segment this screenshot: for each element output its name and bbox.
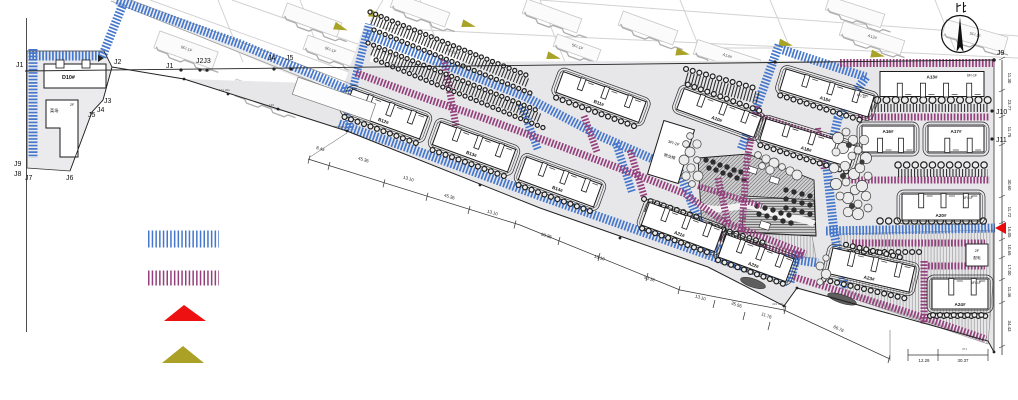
svg-text:139: 139 [269, 103, 274, 107]
svg-text:J5: J5 [286, 55, 294, 62]
svg-text:319 315: 319 315 [772, 302, 783, 306]
svg-text:J6: J6 [66, 175, 74, 182]
svg-text:16.05: 16.05 [1007, 227, 1012, 239]
svg-text:J9: J9 [997, 50, 1005, 57]
svg-text:A20#: A20# [936, 213, 947, 218]
svg-text:335 326: 335 326 [334, 125, 345, 129]
svg-text:11.30: 11.30 [1007, 73, 1012, 84]
svg-text:A24#: A24# [955, 302, 966, 307]
svg-text:17.00: 17.00 [1007, 265, 1012, 277]
svg-text:菜场: 菜场 [50, 107, 58, 114]
svg-text:34.43: 34.43 [1007, 321, 1012, 333]
svg-text:J4: J4 [268, 55, 276, 62]
svg-text:J2: J2 [114, 59, 122, 66]
svg-text:30.37: 30.37 [958, 358, 970, 363]
svg-text:A16#: A16# [883, 129, 894, 134]
svg-text:2F: 2F [975, 248, 980, 253]
svg-text:12.29: 12.29 [919, 358, 931, 363]
svg-text:131 321: 131 321 [219, 88, 230, 92]
svg-text:J3: J3 [104, 98, 112, 105]
svg-text:6F/-1F: 6F/-1F [967, 74, 977, 78]
svg-text:23.77: 23.77 [1007, 100, 1012, 112]
svg-text:配电: 配电 [973, 255, 981, 260]
svg-text:D10#: D10# [62, 75, 75, 81]
svg-text:J8: J8 [14, 171, 22, 178]
svg-text:6F/-1F: 6F/-1F [971, 281, 981, 285]
svg-text:J9: J9 [14, 161, 22, 168]
svg-text:J1: J1 [16, 62, 24, 69]
svg-text:J1: J1 [166, 63, 174, 70]
svg-text:A13#: A13# [927, 75, 938, 80]
svg-text:A17#: A17# [951, 129, 962, 134]
svg-text:J10: J10 [996, 109, 1007, 116]
svg-text:10.65: 10.65 [1007, 245, 1012, 257]
svg-text:J2J3: J2J3 [196, 58, 211, 65]
svg-text:J4: J4 [97, 107, 105, 114]
svg-text:J11: J11 [996, 137, 1007, 144]
svg-text:11.72: 11.72 [1007, 207, 1012, 218]
svg-text:11.75: 11.75 [1007, 127, 1012, 138]
svg-text:11.46: 11.46 [1007, 287, 1012, 298]
svg-text:371: 371 [962, 347, 967, 351]
svg-text:6F/-1F: 6F/-1F [963, 196, 973, 200]
svg-text:30.60: 30.60 [1007, 180, 1012, 192]
